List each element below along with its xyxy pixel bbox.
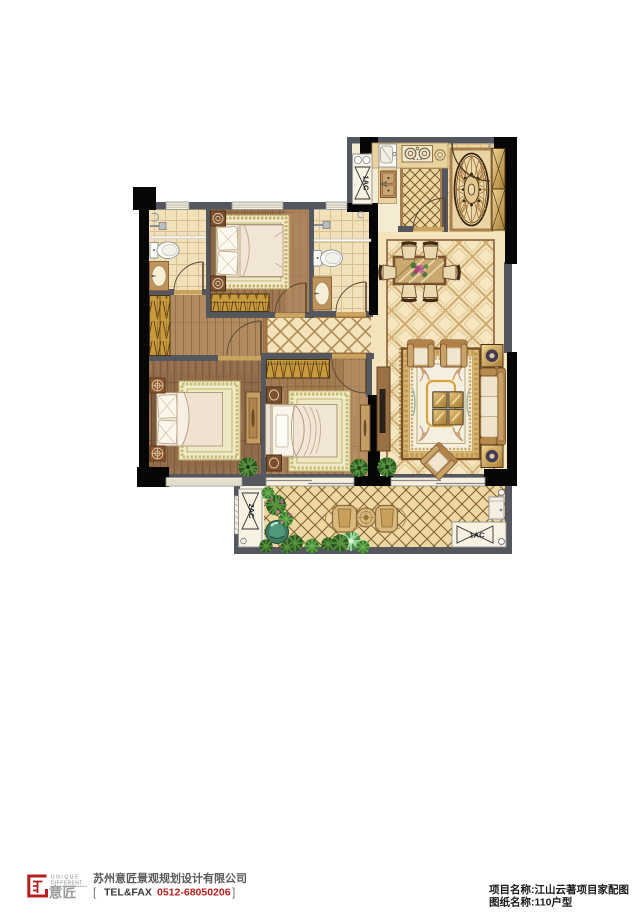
svg-text:1AC: 1AC — [469, 531, 485, 540]
svg-text:0512-68050206: 0512-68050206 — [157, 887, 231, 899]
svg-text:2AC: 2AC — [247, 503, 256, 519]
svg-text:]: ] — [232, 885, 235, 899]
svg-text:1AC: 1AC — [362, 175, 371, 191]
svg-text:项目名称:江山云著项目家配图: 项目名称:江山云著项目家配图 — [489, 883, 629, 896]
svg-text:图纸名称:110户型: 图纸名称:110户型 — [489, 896, 573, 909]
svg-text:意匠: 意匠 — [49, 885, 77, 901]
svg-text:TEL&FAX: TEL&FAX — [104, 887, 152, 899]
svg-text:苏州意匠景观规划设计有限公司: 苏州意匠景观规划设计有限公司 — [93, 871, 247, 885]
